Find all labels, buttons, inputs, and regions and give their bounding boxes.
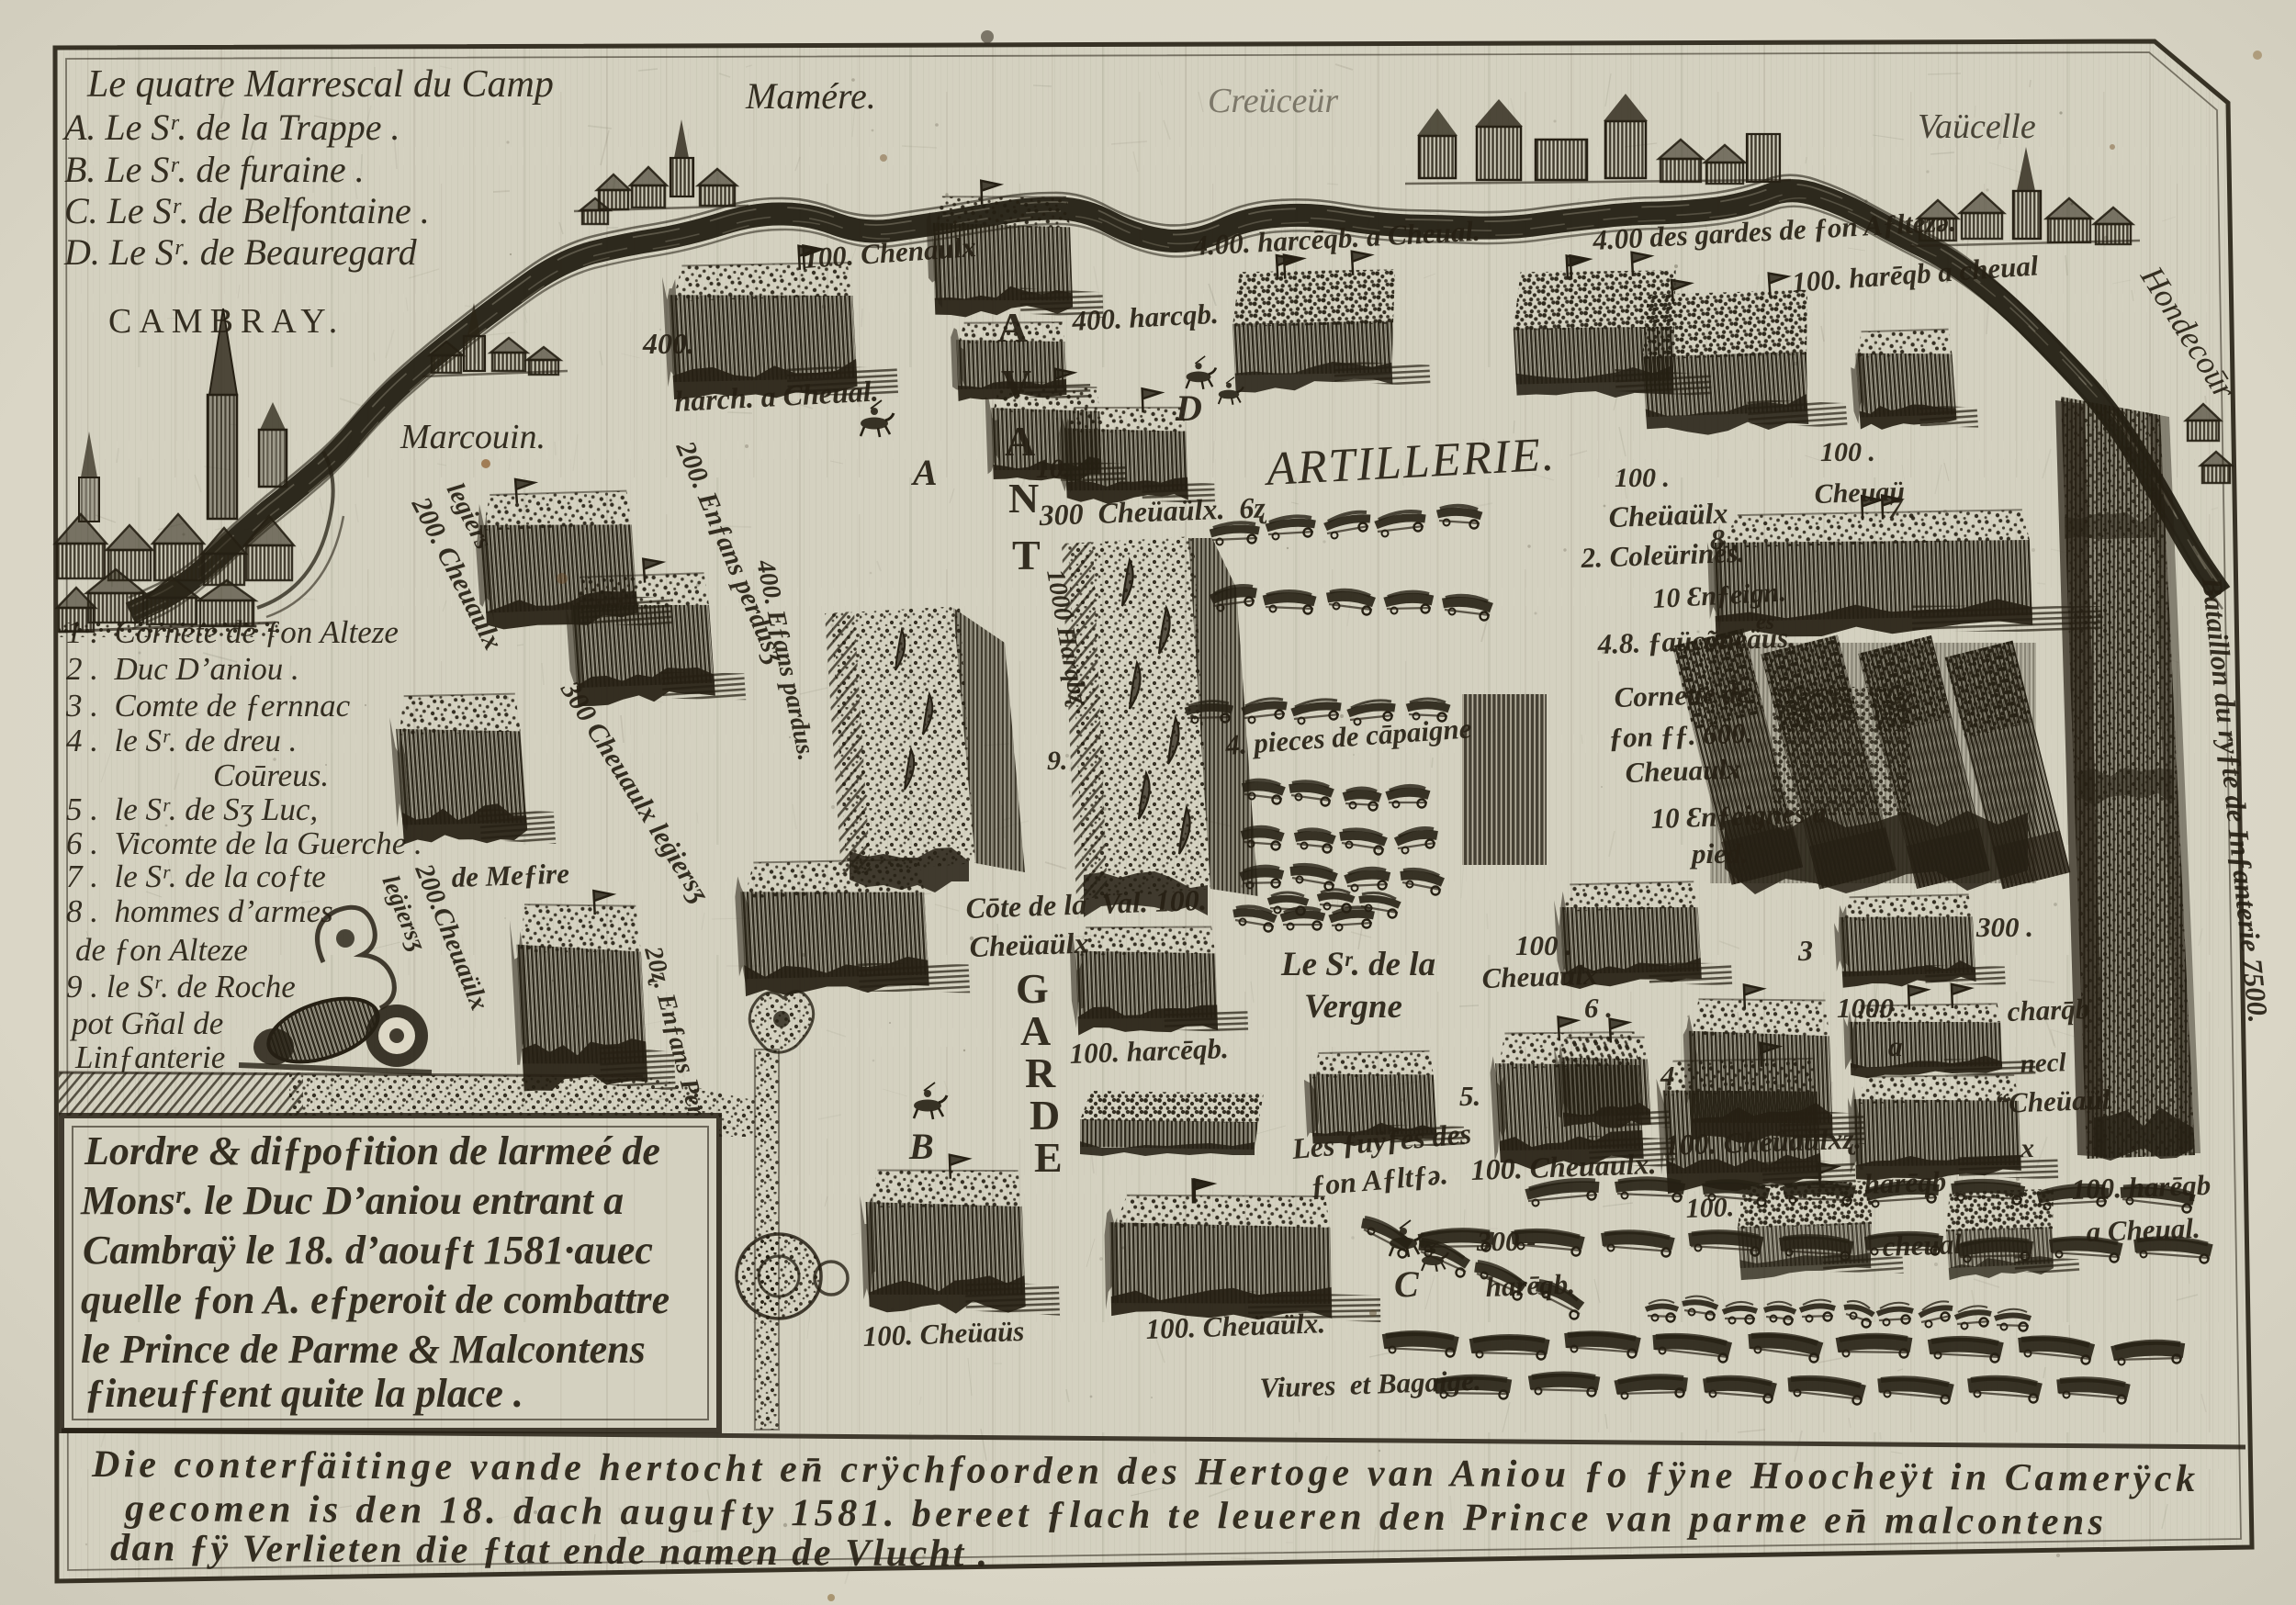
svg-text:B: B xyxy=(908,1126,934,1167)
svg-text:6 .: 6 . xyxy=(1584,992,1613,1024)
svg-text:D: D xyxy=(1030,1092,1060,1139)
svg-text:7 . le Sʳ. de la coƒte: 7 . le Sʳ. de la coƒte xyxy=(66,859,326,894)
svg-text:C. Le Sʳ. de Belfontaine .: C. Le Sʳ. de Belfontaine . xyxy=(64,190,430,231)
svg-text:A: A xyxy=(910,452,938,493)
svg-text:4 . le Sʳ. de dreu .: 4 . le Sʳ. de dreu . xyxy=(66,723,297,758)
svg-text:100. Cheüaülxʐ.: 100. Cheüaülxʐ. xyxy=(1664,1122,1862,1162)
svg-text:harēqb.: harēqb. xyxy=(1485,1268,1575,1303)
svg-text:Cheuaulx: Cheuaulx xyxy=(1625,753,1741,789)
svg-text:Lordre & diƒpoƒition de larmeé: Lordre & diƒpoƒition de larmeé de xyxy=(84,1128,660,1173)
svg-text:pied.: pied. xyxy=(1689,837,1748,870)
svg-text:C: C xyxy=(1394,1263,1420,1305)
svg-text:9.: 9. xyxy=(1047,746,1068,776)
svg-text:300 .: 300 . xyxy=(1975,911,2033,943)
svg-text:necl: necl xyxy=(2020,1048,2067,1079)
svg-text:Vergne: Vergne xyxy=(1304,988,1402,1026)
svg-text:5.: 5. xyxy=(1459,1080,1480,1112)
svg-text:Linƒanterie: Linƒanterie xyxy=(74,1039,225,1075)
svg-text:Creüceür: Creüceür xyxy=(1208,82,1338,120)
svg-text:pot Gñal de: pot Gñal de xyxy=(69,1005,223,1041)
svg-text:Marcouin.: Marcouin. xyxy=(400,418,546,456)
svg-text:100. harēqb: 100. harēqb xyxy=(2071,1169,2212,1206)
svg-text:N: N xyxy=(1008,475,1039,522)
svg-text:Cornette de: Cornette de xyxy=(1614,677,1750,713)
svg-text:8 .: 8 . xyxy=(1710,522,1739,556)
svg-text:B. Le Sʳ. de furaine .: B. Le Sʳ. de furaine . xyxy=(64,149,365,190)
svg-text:Le quatre Marrescal du Camp: Le quatre Marrescal du Camp xyxy=(86,63,554,106)
svg-text:le Prince de Parme & Malconten: le Prince de Parme & Malcontens xyxy=(81,1327,646,1372)
svg-text:A. Le Sʳ. de la Trappe .: A. Le Sʳ. de la Trappe . xyxy=(62,107,400,148)
svg-text:100. Cheüaülx.: 100. Cheüaülx. xyxy=(1145,1307,1326,1345)
svg-text:3 . Comte de ƒernnac: 3 . Comte de ƒernnac xyxy=(65,688,351,724)
svg-text:ƒineuƒƒent quite la place .: ƒineuƒƒent quite la place . xyxy=(84,1371,523,1416)
svg-text:5 . le Sʳ. de Sʒ Luc,: 5 . le Sʳ. de Sʒ Luc, xyxy=(66,791,318,827)
svg-text:2 . Duc D’aniou .: 2 . Duc D’aniou . xyxy=(66,651,299,687)
svg-text:R: R xyxy=(1025,1049,1056,1096)
svg-text:1000: 1000 xyxy=(1837,992,1894,1024)
svg-text:quelle ƒon A. eƒperoit de comb: quelle ƒon A. eƒperoit de combattre xyxy=(81,1277,670,1322)
svg-text:Vaücelle: Vaücelle xyxy=(1918,107,2036,146)
svg-text:Le Sʳ. de la: Le Sʳ. de la xyxy=(1280,946,1435,983)
svg-text:8 . hommes d’armes: 8 . hommes d’armes xyxy=(66,893,333,929)
svg-text:D. Le Sʳ. de Beauregard: D. Le Sʳ. de Beauregard xyxy=(63,231,418,273)
svg-text:100.: 100. xyxy=(1685,1192,1735,1224)
svg-text:Coūreus.: Coūreus. xyxy=(213,758,329,793)
svg-text:E: E xyxy=(1034,1134,1063,1181)
svg-text:400.: 400. xyxy=(642,327,694,360)
svg-text:10.: 10. xyxy=(1036,454,1071,484)
svg-text:“Cheüaül: “Cheüaül xyxy=(1994,1083,2110,1119)
svg-text:D: D xyxy=(1175,387,1202,429)
svg-text:de ƒon Alteze: de ƒon Alteze xyxy=(75,932,248,968)
svg-text:A: A xyxy=(1005,418,1035,465)
svg-text:100. harcēqb.: 100. harcēqb. xyxy=(1069,1032,1229,1070)
svg-text:a: a xyxy=(1888,1030,1903,1062)
svg-text:a Cheual.: a Cheual. xyxy=(2086,1212,2200,1248)
svg-text:G: G xyxy=(1016,965,1049,1012)
svg-text:6 . Vicomte de la Guerche .: 6 . Vicomte de la Guerche . xyxy=(66,825,422,861)
svg-text:9 . le Sʳ. de Roche: 9 . le Sʳ. de Roche xyxy=(66,969,296,1005)
svg-text:4: 4 xyxy=(1660,1060,1675,1092)
svg-text:dan ƒÿ Verlieten die ƒtat end: dan ƒÿ Verlieten die ƒtat ende namen de… xyxy=(110,1527,990,1576)
svg-text:harēqb: harēqb xyxy=(1863,1165,1947,1200)
svg-text:100 .: 100 . xyxy=(1615,463,1670,493)
svg-text:3: 3 xyxy=(1797,934,1813,967)
svg-text:V: V xyxy=(1001,361,1031,408)
svg-text:x: x xyxy=(2020,1133,2034,1163)
svg-text:100 .: 100 . xyxy=(1515,929,1572,961)
svg-text:Cambraÿ le 18. d’aouƒt 1581·a: Cambraÿ le 18. d’aouƒt 1581·auec xyxy=(83,1228,653,1273)
svg-text:A: A xyxy=(1020,1007,1051,1054)
svg-text:de Meƒire: de Meƒire xyxy=(451,858,570,893)
svg-text:charq̄b: charq̄b xyxy=(2007,993,2090,1027)
svg-text:300 -: 300 - xyxy=(1476,1225,1536,1257)
svg-text:ƒon ƒƒ. 600.: ƒon ƒƒ. 600. xyxy=(1608,717,1753,754)
svg-text:cheual: cheual xyxy=(1882,1228,1963,1263)
svg-text:100. Cheuaulx.: 100. Cheuaulx. xyxy=(1470,1147,1657,1186)
svg-text:A: A xyxy=(997,304,1028,351)
svg-text:Monsʳ. le Duc D’aniou entrant: Monsʳ. le Duc D’aniou entrant a xyxy=(80,1178,624,1223)
svg-text:10 Ɛnƒeignes a: 10 Ɛnƒeignes a xyxy=(1650,796,1828,835)
svg-text:Mamére.: Mamére. xyxy=(745,75,876,117)
svg-text:100 .: 100 . xyxy=(1820,437,1875,467)
svg-text:Cheüaülx: Cheüaülx xyxy=(969,926,1089,963)
svg-text:T: T xyxy=(1012,532,1041,578)
svg-text:Cheuaulx: Cheuaulx xyxy=(1481,959,1598,994)
svg-text:100. Cheüaüs: 100. Cheüaüs xyxy=(862,1315,1025,1352)
svg-text:1 . Cornete de ƒon Alteze: 1 . Cornete de ƒon Alteze xyxy=(66,614,399,650)
svg-text:CAMBRAY.: CAMBRAY. xyxy=(108,302,344,341)
svg-text:Cheuaü: Cheuaü xyxy=(1814,477,1905,510)
